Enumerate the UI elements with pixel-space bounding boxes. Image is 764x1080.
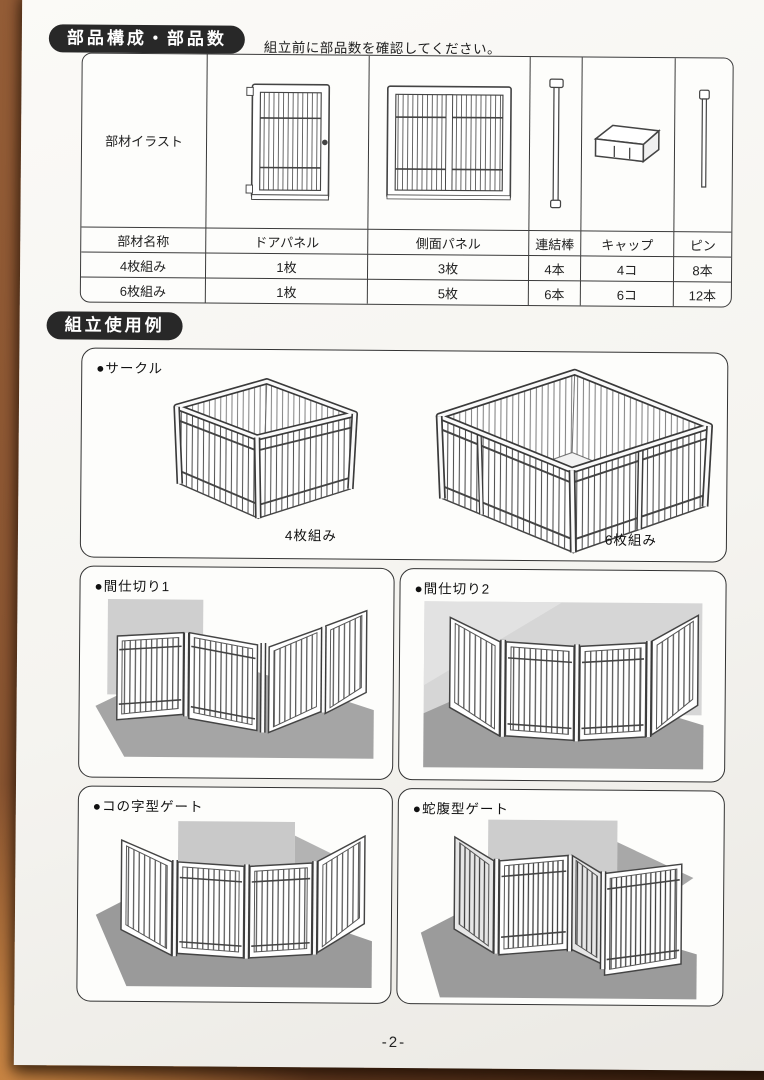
cell-6set-side: 5枚 xyxy=(367,279,528,305)
col-header-side: 側面パネル xyxy=(367,229,528,255)
row-6set-label: 6枚組み xyxy=(81,277,205,303)
cell-6set-door: 1枚 xyxy=(205,277,367,303)
cell-6set-pin: 12本 xyxy=(673,281,731,306)
cell-4set-rod: 4本 xyxy=(528,255,580,280)
col-header-door: ドアパネル xyxy=(205,227,367,253)
row-4set-label: 4枚組み xyxy=(81,252,205,278)
circle-4panel-illustration xyxy=(156,371,382,523)
cell-6set-cap: 6コ xyxy=(580,280,673,306)
cell-6set-rod: 6本 xyxy=(528,280,580,305)
cap-icon xyxy=(580,57,674,231)
partition1-illustration xyxy=(89,593,382,771)
cell-4set-side: 3枚 xyxy=(367,254,528,280)
circle-label: ●サークル xyxy=(96,357,163,378)
circle-caption-4set: 4枚組み xyxy=(221,524,401,545)
cell-4set-pin: 8本 xyxy=(673,256,731,281)
manual-page: 部品構成・部品数 組立前に部品数を確認してください。 部材イラスト xyxy=(14,0,764,1071)
ugate-illustration xyxy=(87,813,380,995)
cell-4set-door: 1枚 xyxy=(205,252,367,278)
col-header-rod: 連結棒 xyxy=(528,230,580,255)
connect-rod-icon xyxy=(528,57,581,230)
col-header-pin: ピン xyxy=(673,231,731,256)
col-header-cap: キャップ xyxy=(580,230,673,256)
illust-row-label: 部材イラスト xyxy=(81,54,206,228)
door-panel-icon xyxy=(205,54,368,228)
example-box-partition2: ●間仕切り2 xyxy=(398,568,727,783)
example-box-accordion-gate: ●蛇腹型ゲート xyxy=(396,788,725,1007)
example-box-partition1: ●間仕切り1 xyxy=(78,566,395,780)
col-header-name: 部材名称 xyxy=(81,227,205,253)
partition2-illustration xyxy=(411,595,712,777)
example-box-ugate: ●コの字型ゲート xyxy=(76,785,393,1003)
example-box-circle: ●サークル 4枚組み xyxy=(80,348,729,563)
parts-table: 部材イラスト xyxy=(80,53,734,308)
section-title-usage: 組立使用例 xyxy=(46,311,182,340)
pin-icon xyxy=(673,58,732,231)
accordion-gate-illustration xyxy=(409,813,710,1001)
section-title-parts: 部品構成・部品数 xyxy=(49,24,245,54)
side-panel-icon xyxy=(367,56,529,230)
cell-4set-cap: 4コ xyxy=(580,255,673,281)
circle-caption-6set: 6枚組み xyxy=(541,528,721,549)
page-number: -2- xyxy=(14,1031,764,1054)
